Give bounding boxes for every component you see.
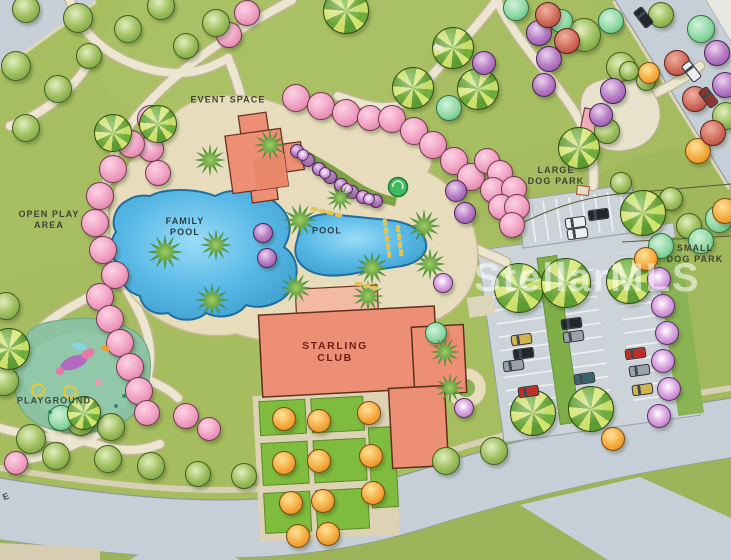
label-open-play-area: OPEN PLAY AREA — [18, 209, 79, 231]
gazebo-pavilion — [580, 108, 610, 138]
label-starling-club-line1: STARLING — [302, 340, 368, 352]
label-large-dog-park-line2: DOG PARK — [528, 176, 585, 187]
label-small-dog-park-line1: SMALL — [667, 243, 724, 254]
label-family-pool-line1: FAMILY — [166, 216, 205, 227]
label-large-dog-park: LARGE DOG PARK — [528, 165, 585, 187]
courtyard — [253, 389, 400, 542]
label-open-play-line1: OPEN PLAY — [18, 209, 79, 220]
label-open-play-line2: AREA — [18, 220, 79, 231]
label-starling-club-line2: CLUB — [302, 352, 368, 364]
label-family-pool: FAMILY POOL — [166, 216, 205, 238]
dog-park-gate — [659, 193, 672, 204]
site-plan: EVENT SPACE OPEN PLAY AREA FAMILY POOL P… — [0, 0, 731, 560]
watermark: StellarMLS — [474, 256, 701, 301]
label-pool: POOL — [312, 226, 342, 237]
spa — [338, 183, 352, 197]
label-event-space: EVENT SPACE — [191, 95, 266, 106]
label-playground: PLAYGROUND — [17, 396, 91, 407]
label-large-dog-park-line1: LARGE — [528, 165, 585, 176]
label-starling-club: STARLING CLUB — [302, 340, 368, 364]
label-family-pool-line2: POOL — [166, 227, 205, 238]
